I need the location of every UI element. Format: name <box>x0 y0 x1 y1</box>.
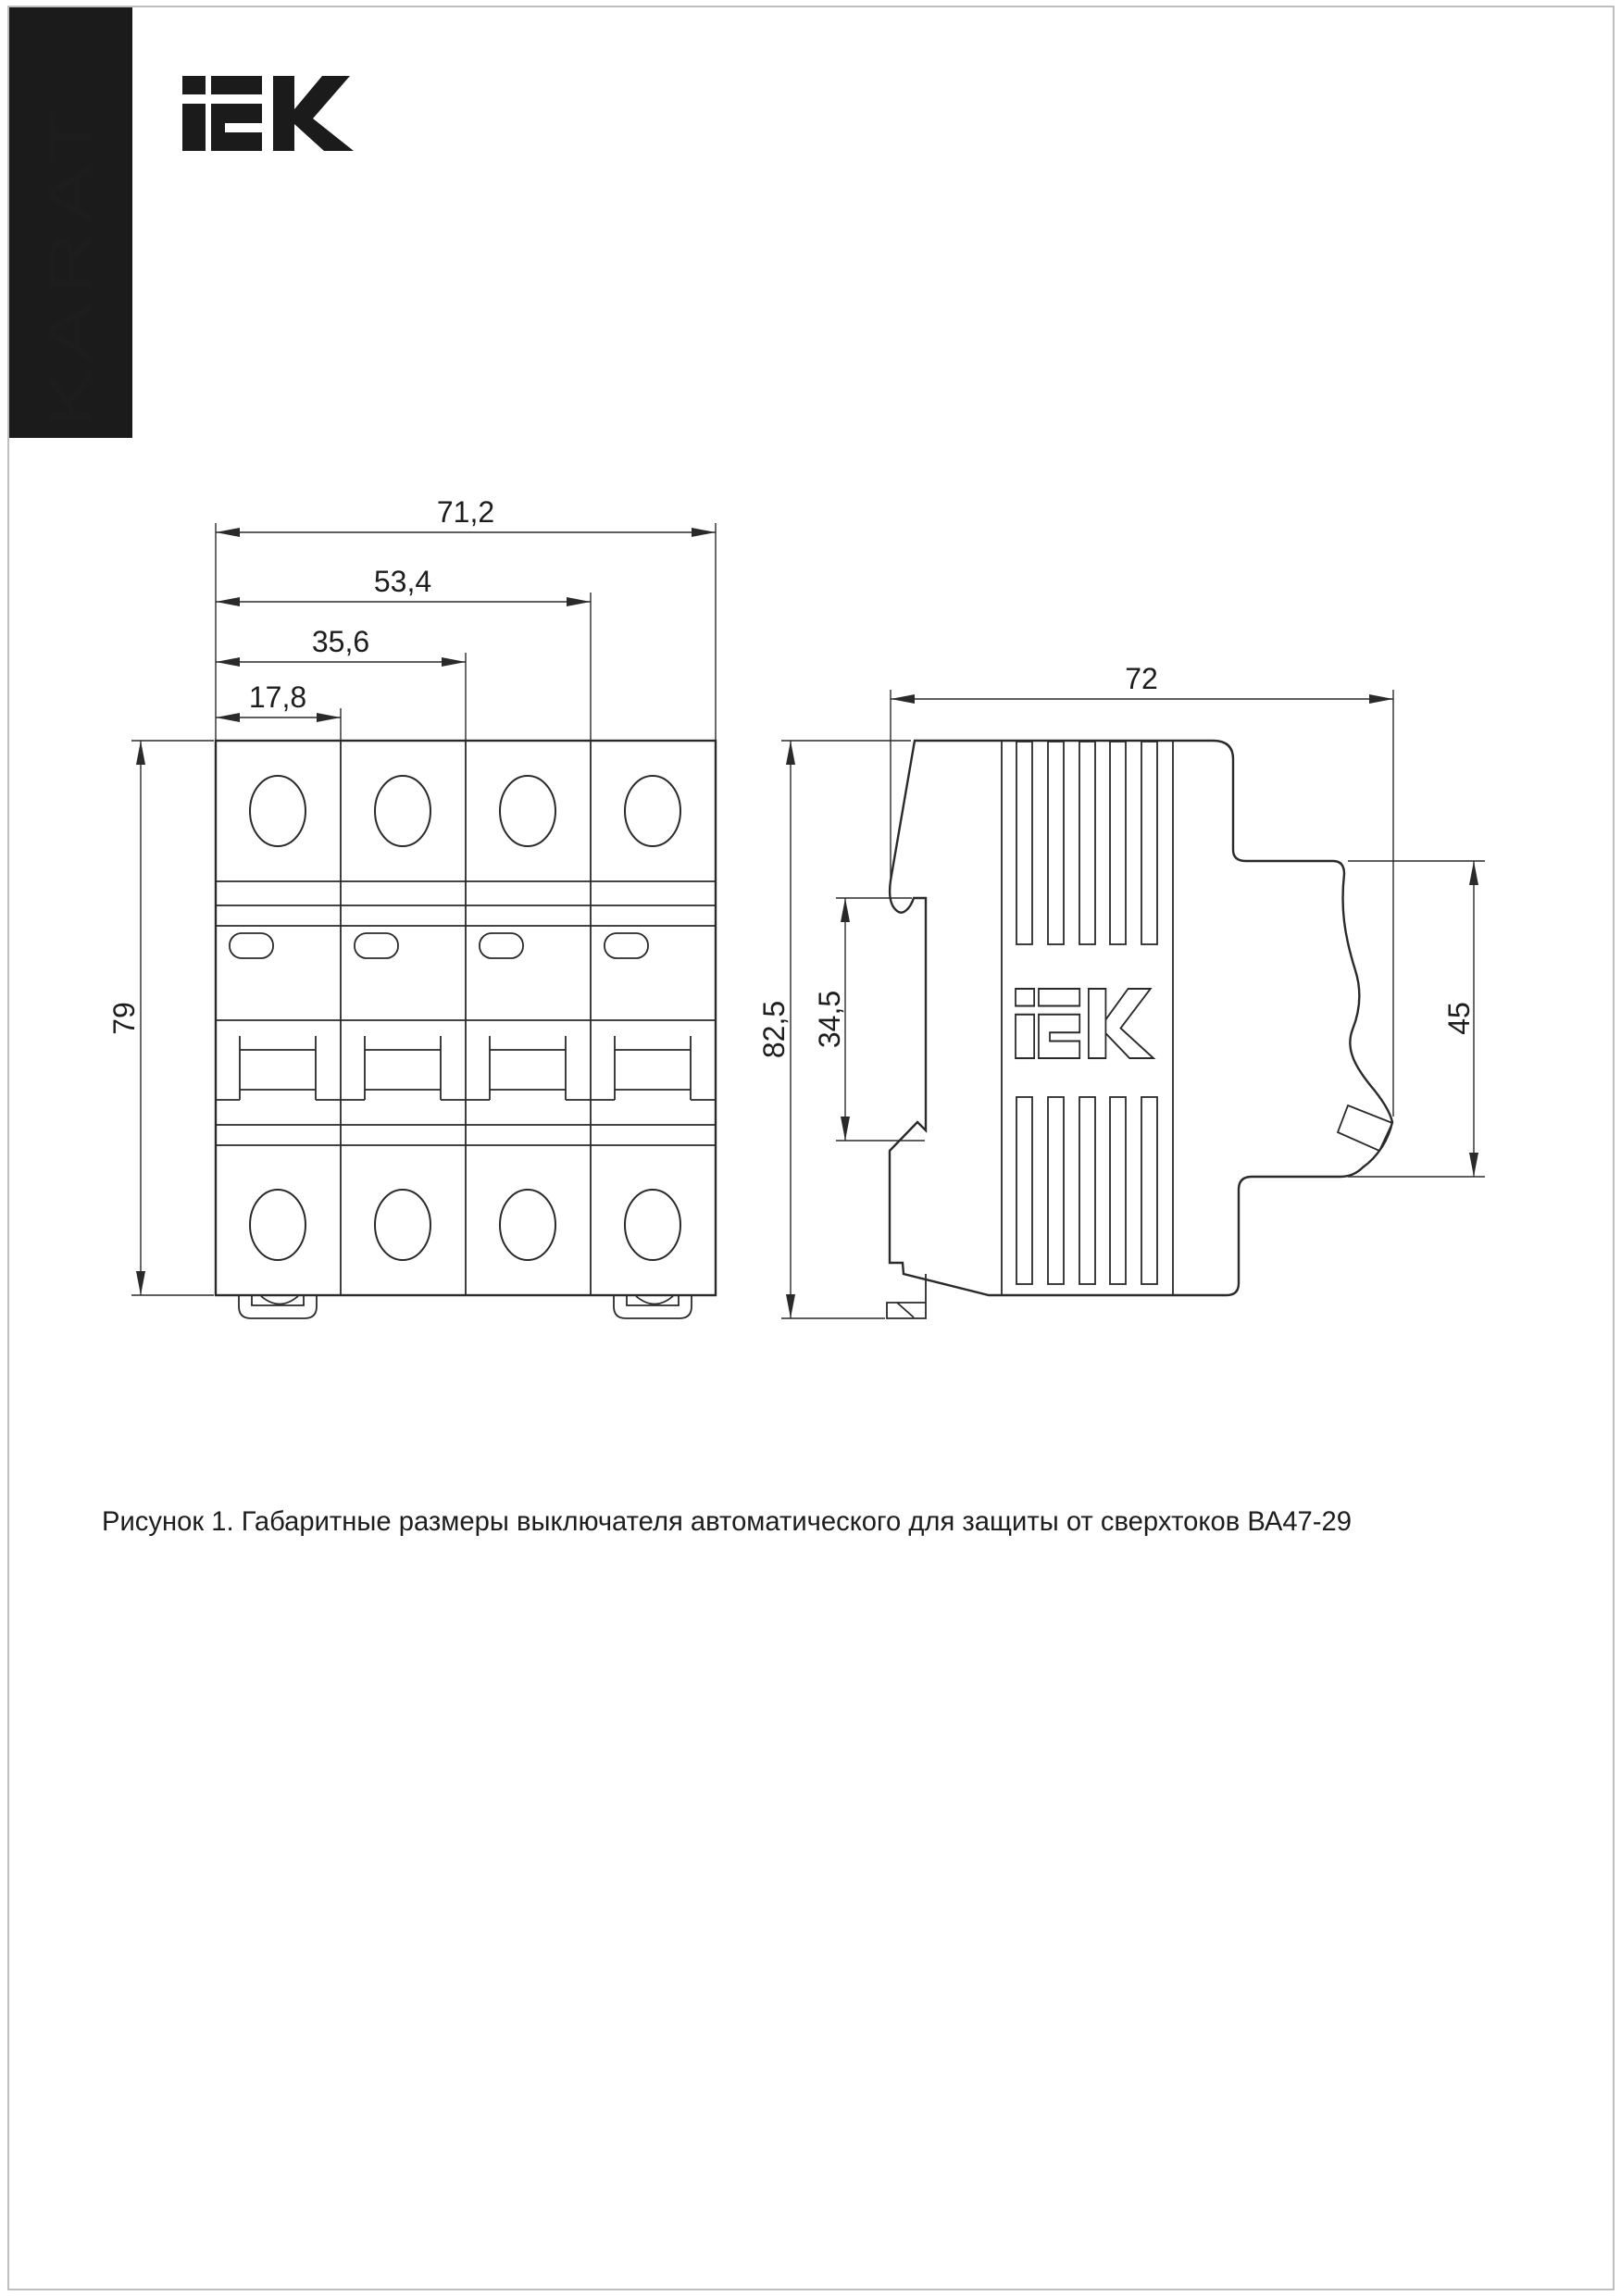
document-page: KARAT <box>0 0 1621 2296</box>
dim-overall-width: 71,2 <box>437 495 494 529</box>
din-clip-left <box>239 1295 317 1318</box>
dim-one-module: 17,8 <box>249 680 306 714</box>
vent-slots-upper <box>1016 742 1157 944</box>
marking-windows <box>230 933 648 958</box>
dim-overall-height: 79 <box>107 1002 141 1035</box>
side-din-clip <box>887 1274 926 1318</box>
dim-din-zone: 34,5 <box>813 991 846 1048</box>
iek-logo-icon <box>182 76 354 151</box>
dim-side-height: 82,5 <box>757 1001 791 1058</box>
din-clip-right <box>614 1295 692 1318</box>
front-view-dimensions <box>131 523 716 1295</box>
dim-three-modules: 53,4 <box>374 565 431 598</box>
iek-logo-embossed-icon <box>1016 989 1153 1058</box>
front-view <box>216 741 716 1318</box>
vent-slots-lower <box>1016 1097 1157 1284</box>
dim-front-depth: 45 <box>1442 1002 1476 1035</box>
technical-drawing: KARAT <box>0 0 1621 2296</box>
brand-bar-label: KARAT <box>37 102 104 428</box>
side-view <box>887 741 1392 1318</box>
brand-bar: KARAT <box>9 7 132 438</box>
dim-overall-depth: 72 <box>1125 662 1158 695</box>
figure-caption: Рисунок 1. Габаритные размеры выключател… <box>102 1506 1352 1537</box>
dim-two-modules: 35,6 <box>312 625 369 658</box>
